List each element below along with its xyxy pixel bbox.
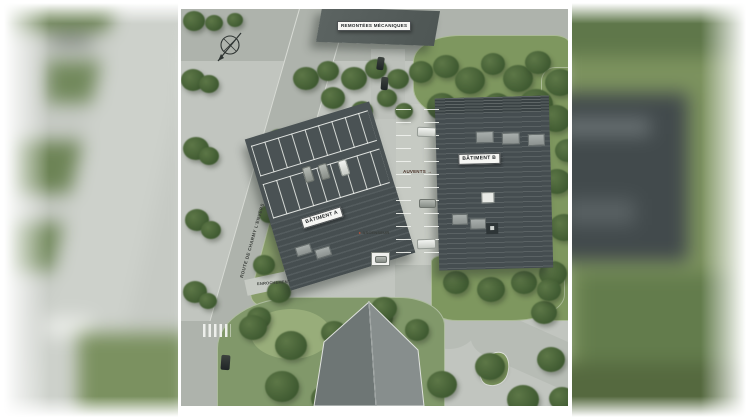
car bbox=[381, 77, 389, 90]
tree bbox=[555, 139, 568, 162]
tree bbox=[537, 347, 565, 372]
tree bbox=[511, 271, 537, 294]
blur-blob bbox=[572, 363, 746, 417]
tree bbox=[201, 221, 221, 239]
skylight bbox=[452, 214, 468, 225]
car bbox=[417, 239, 436, 250]
car bbox=[375, 256, 387, 263]
roof-structure-dark bbox=[486, 223, 498, 234]
listing-photo-stage: BÂTIMENT A BÂTIMENT B REMONTÉES MÉCANIQU… bbox=[0, 0, 750, 420]
tree bbox=[183, 11, 205, 31]
car bbox=[419, 199, 436, 208]
blur-blob bbox=[78, 333, 178, 417]
tree bbox=[481, 53, 505, 75]
tree bbox=[199, 293, 217, 309]
tree bbox=[525, 51, 551, 74]
tree bbox=[537, 279, 561, 301]
tree bbox=[443, 271, 469, 294]
blurred-backdrop-left bbox=[4, 3, 178, 417]
auvents-annotation: AUVENTS → bbox=[403, 169, 432, 174]
tree bbox=[531, 301, 557, 324]
skylight bbox=[502, 132, 520, 144]
blur-blob bbox=[572, 3, 746, 56]
north-arrow-icon bbox=[211, 29, 247, 69]
tree bbox=[227, 13, 243, 27]
tree bbox=[475, 353, 505, 380]
tree bbox=[199, 75, 219, 93]
skylight bbox=[470, 218, 486, 229]
blur-blob bbox=[572, 119, 650, 135]
car bbox=[417, 127, 436, 138]
tree bbox=[239, 315, 267, 340]
tree bbox=[507, 385, 539, 406]
site-plan-image: BÂTIMENT A BÂTIMENT B REMONTÉES MÉCANIQU… bbox=[181, 9, 568, 406]
building-b-label: BÂTIMENT B bbox=[458, 153, 500, 165]
tree bbox=[199, 147, 219, 165]
parking-stripes bbox=[396, 109, 411, 264]
canopy-parking-box bbox=[371, 252, 390, 266]
arrow-icon: → bbox=[427, 169, 432, 174]
tree bbox=[455, 67, 485, 94]
blurred-backdrop-right bbox=[572, 3, 746, 417]
skylight bbox=[476, 131, 494, 143]
tree bbox=[321, 87, 345, 109]
tree bbox=[477, 277, 505, 302]
blur-right-content bbox=[572, 3, 746, 417]
tree bbox=[377, 89, 397, 107]
blur-left-content bbox=[4, 3, 178, 417]
skylight bbox=[528, 134, 545, 146]
remontees-label: REMONTÉES MÉCANIQUES bbox=[337, 21, 411, 31]
roof-band bbox=[435, 96, 549, 115]
car bbox=[220, 355, 230, 371]
tree bbox=[545, 69, 568, 96]
building-b: BÂTIMENT B bbox=[435, 96, 553, 271]
pitched-roof-building bbox=[291, 294, 451, 406]
tree bbox=[317, 61, 339, 81]
tree bbox=[387, 69, 409, 89]
roof-vent bbox=[490, 226, 494, 230]
tree bbox=[253, 255, 275, 275]
ascenseur-annotation: ▸ ASCENSEUR bbox=[359, 230, 389, 235]
auvents-label: AUVENTS bbox=[403, 169, 426, 174]
ascenseur-label: ASCENSEUR bbox=[362, 230, 389, 235]
tree bbox=[409, 61, 433, 83]
red-marker-icon: ▸ bbox=[359, 230, 361, 235]
blur-blob bbox=[572, 199, 635, 225]
tree bbox=[293, 67, 319, 90]
blur-blob bbox=[50, 33, 92, 48]
roof-structure bbox=[481, 192, 494, 203]
tree bbox=[341, 67, 367, 90]
tree bbox=[549, 387, 568, 406]
